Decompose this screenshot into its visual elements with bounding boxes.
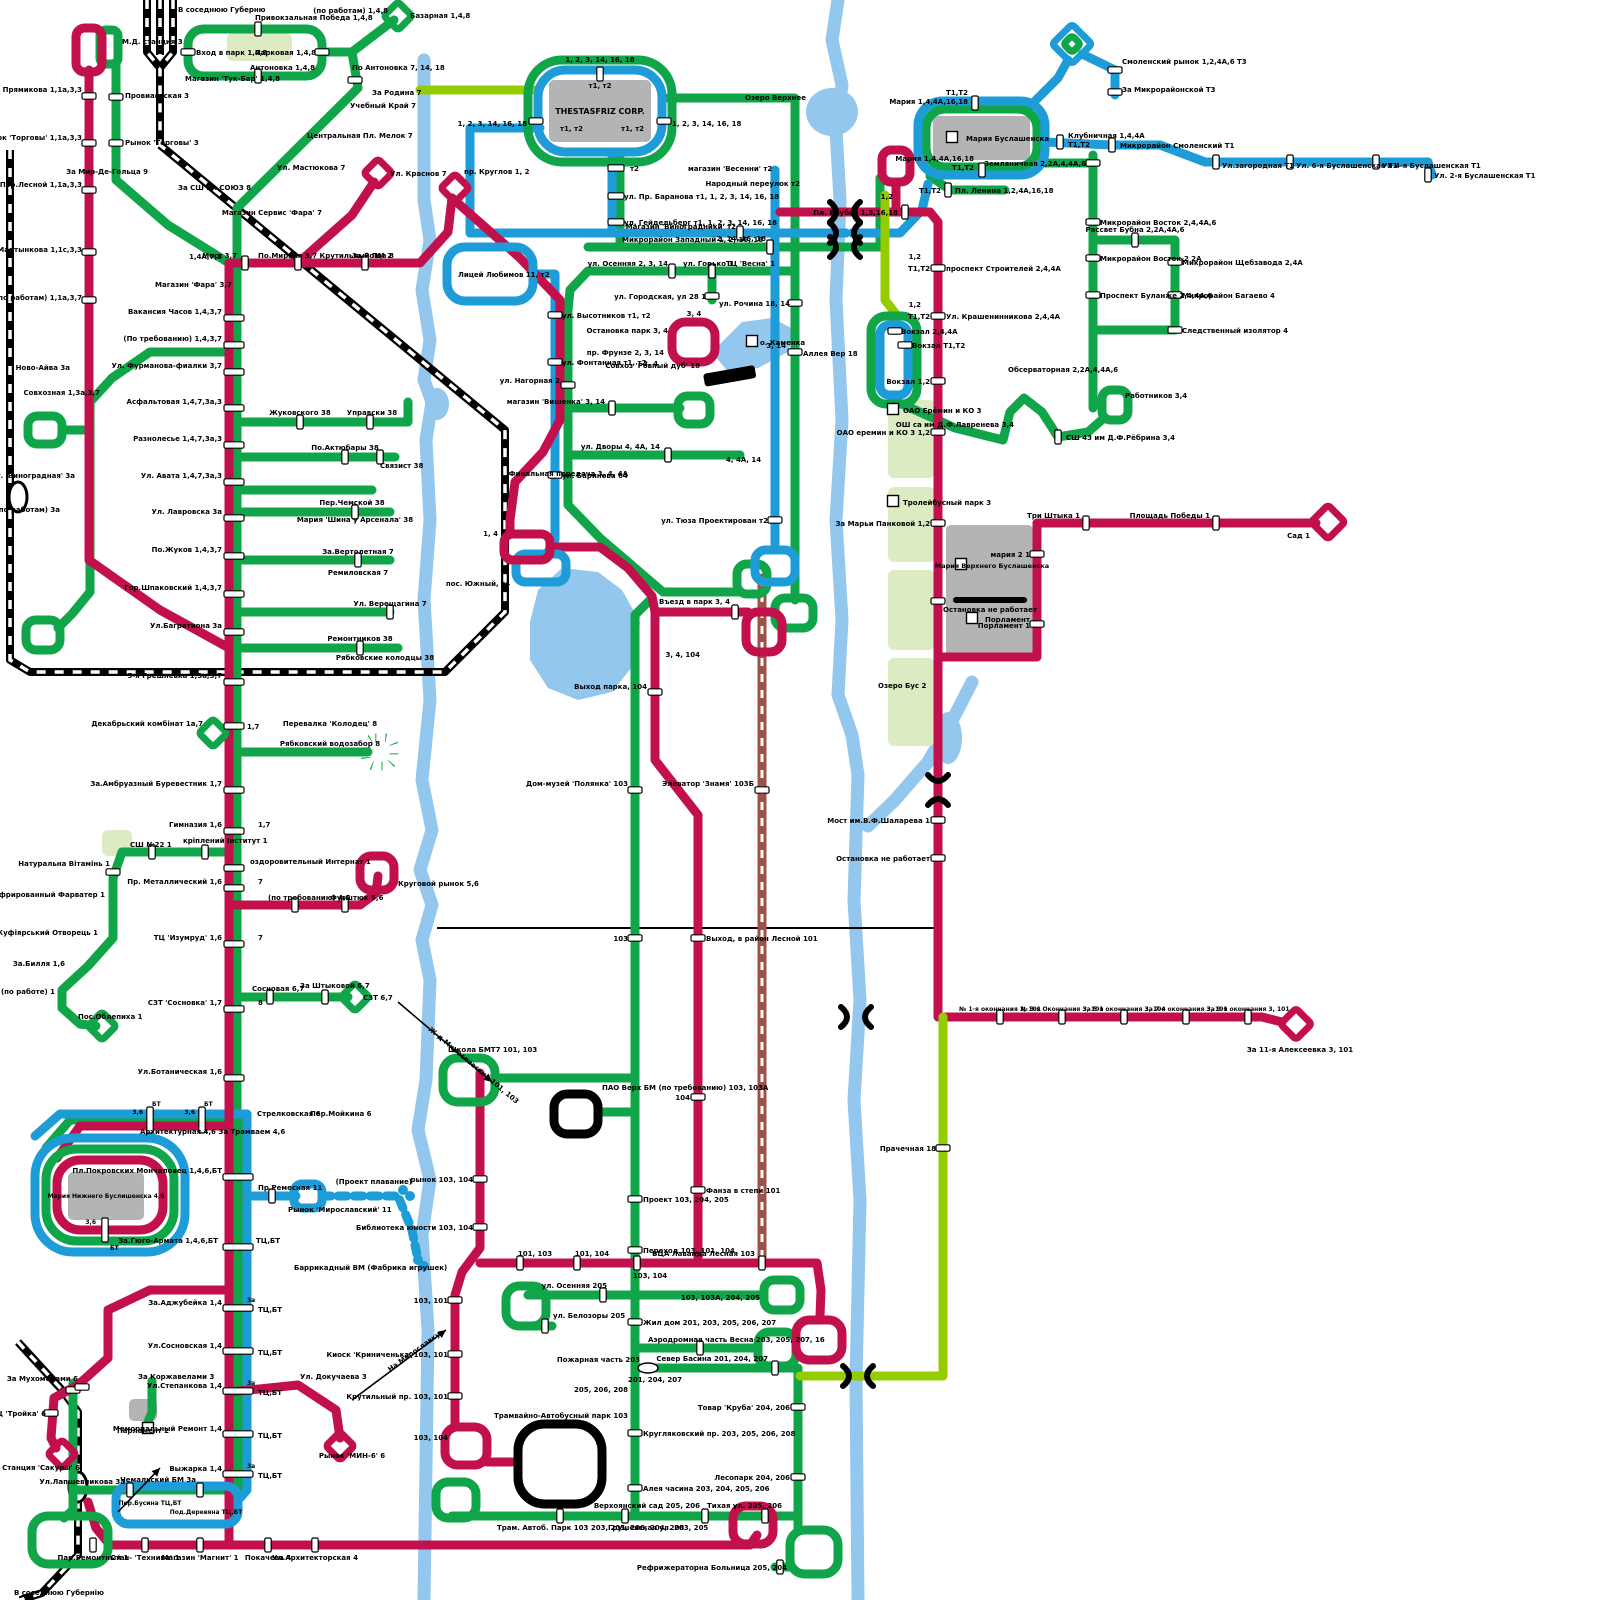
map-label: Земляничная 2,2А,4,4А,6 (984, 160, 1086, 168)
stop-marker (1168, 327, 1182, 333)
map-label: 103, 104 (414, 1434, 448, 1442)
map-label: 3, 14 (766, 342, 786, 350)
river (418, 60, 432, 1600)
map-label: 7 (258, 878, 263, 886)
map-label: Прямикова 1,1а,3,3 (3, 86, 82, 94)
map-label: 1,7 (258, 821, 271, 829)
map-label: Антоновка 1,4,8 (250, 64, 315, 72)
map-label: За Роща 8 (352, 252, 394, 260)
map-label: Магазин 'Магнит' 1 (161, 1554, 238, 1562)
terminal-loop (764, 1280, 800, 1310)
map-label: Ул.Ботаническая 1,6 (138, 1068, 222, 1076)
station-icon (947, 132, 958, 143)
map-label: Библиотека юности 103, 104 (356, 1224, 473, 1232)
stop-marker (1108, 89, 1122, 95)
map-label: магазин 'Вишенка' 3, 14 (507, 398, 605, 406)
map-label: Базарная 1,4,8 (410, 12, 470, 20)
stop-marker (223, 1348, 253, 1354)
map-label: ул. Городская, ул 28 1 (614, 293, 706, 301)
map-label: Магазин 'Виноградники' т2 (626, 223, 736, 231)
terminal-loop (76, 28, 102, 72)
bridge-mark (865, 1007, 871, 1027)
stop-marker (669, 264, 675, 278)
map-label: Тролейбусный парк 3 (903, 499, 991, 507)
map-label: 101, 103 (518, 1250, 552, 1258)
stop-marker (82, 140, 96, 146)
map-label: 1,7 (247, 723, 260, 731)
park-area (888, 570, 935, 650)
map-label: THESTASFRIZ CORP. (555, 107, 645, 116)
map-label: За Мухоморами 6 (7, 1375, 78, 1383)
map-label: Учебный Край 7 (350, 102, 416, 110)
stop-marker (224, 315, 244, 321)
map-label: Вакансия Часов 1,4,3,7 (128, 308, 222, 316)
map-label: Клубничная 1,4,4А (1068, 132, 1145, 140)
stop-marker (657, 118, 671, 124)
stop-marker (768, 517, 782, 523)
map-label: Элеватор 'Знамя' 103Б (662, 780, 754, 788)
map-label: Гор.Шпаковский 1,4,3,7 (124, 584, 222, 592)
stop-marker (931, 378, 945, 384)
map-label: Ул. Крашенинникова 2,4,4А (946, 313, 1061, 321)
map-label: Ул 4-я Буслашенская Т1 (1382, 162, 1481, 170)
stop-marker (142, 1538, 148, 1552)
stop-marker (1132, 233, 1138, 247)
map-label: ул. Тюза Проектирован т2 (661, 517, 768, 525)
map-label: Связист 38 (380, 462, 424, 470)
stop-marker (224, 1006, 244, 1012)
map-label: ТЦ,БТ (258, 1306, 282, 1314)
map-label: Натуральна Вітамінь 1 (18, 860, 110, 868)
map-label: 8 (258, 999, 263, 1007)
map-label: Рынок 'Мирославский' 11 (288, 1206, 392, 1214)
map-label: Верхоянский сад 205, 206 (594, 1502, 700, 1510)
map-label: Гофрированный Фарватер 1 (0, 891, 105, 899)
stop-marker (597, 67, 603, 81)
map-label: Гимназия 1,6 (169, 821, 222, 829)
terminal-diamond (1064, 36, 1081, 53)
map-label: ТЦ 'Изумруд' 1,6 (154, 934, 222, 942)
stop-marker (648, 689, 662, 695)
stop-marker (548, 359, 562, 365)
map-label: Архитектурная 4,6 За Трамваем 4,6 (140, 1128, 285, 1136)
map-label: БТ (110, 1245, 120, 1252)
route-line-r (298, 182, 374, 263)
stop-marker (628, 1196, 642, 1202)
map-label: Микрорайон Багаево 4 (1182, 292, 1275, 300)
map-label: Киоск 'Криниченька' 103, 101 (327, 1351, 449, 1359)
map-label: Тихая ул. 205, 206 (707, 1502, 782, 1510)
stop-marker (972, 96, 978, 110)
stop-marker (1086, 160, 1100, 166)
map-label: ул. Высотников т1, т2 (562, 312, 651, 320)
stop-marker (224, 787, 244, 793)
black-bar (953, 597, 1027, 603)
map-label: (Проект плавание) (336, 1178, 412, 1186)
map-label: ОАО Ерёмин и КО 3 (903, 407, 982, 415)
map-label: Фанза в степи 101 (706, 1187, 780, 1195)
stop-marker (312, 1538, 318, 1552)
map-label: пр. Фрунзе 2, 3, 14 (587, 349, 664, 357)
map-label: ОАО еремин и КО 3 1,2 (837, 429, 930, 437)
map-label: Вокзал 1,2 (886, 378, 930, 386)
stop-marker (931, 313, 945, 319)
map-label: магазин 'Весенни' т2 (688, 165, 772, 173)
stop-marker (561, 382, 575, 388)
stop-marker (224, 1075, 244, 1081)
stop-marker (791, 1404, 805, 1410)
stop-marker (1057, 135, 1063, 149)
stop-marker (223, 1471, 253, 1477)
route-line-r (455, 1073, 480, 1425)
station-icon (967, 613, 978, 624)
stop-marker (197, 1483, 203, 1497)
stop-marker (1086, 292, 1100, 298)
map-label: Ул. Лавровска 3а (152, 508, 223, 516)
map-label: Сосновая 6,7 (252, 985, 304, 993)
map-label: Товар 'Круба' 204, 206 (698, 1404, 790, 1412)
stop-marker (945, 183, 951, 197)
stop-marker (82, 93, 96, 99)
map-label: 103, 104 (633, 1272, 667, 1280)
stop-marker (315, 49, 329, 55)
map-label: 1, 4 (483, 530, 498, 538)
map-label: Выжарка 1,4 (169, 1465, 222, 1473)
stop-marker (772, 1361, 778, 1375)
map-label: За.Вертолетная 7 (322, 548, 394, 556)
stop-marker (1083, 516, 1089, 530)
map-label: Пр.Ремесная 11 (258, 1184, 322, 1192)
map-label: 103, 103А, 204, 205 (681, 1294, 760, 1302)
stop-marker (1108, 67, 1122, 73)
map-label: Ново-Айва 3а (16, 364, 71, 372)
stop-marker (788, 349, 802, 355)
stop-marker (702, 1509, 708, 1523)
map-label: Въезд в парк 3, 4 (659, 598, 730, 606)
map-label: Парламент 2 (117, 1427, 169, 1435)
terminal-loop (28, 416, 62, 444)
stop-marker (90, 1538, 96, 1552)
project-dot (405, 1191, 415, 1201)
map-label: Смоленский рынок 1,2,4А,6 Т3 (1122, 58, 1247, 66)
map-label: Пр. Металлический 1,6 (127, 878, 222, 886)
map-label: Мария Нижнего Буслишенска 4,6 (48, 1193, 165, 1200)
map-label: т1, т2 (560, 125, 583, 133)
map-label: оздоровительный Интернат 1 (250, 858, 371, 866)
stop-marker (109, 94, 123, 100)
map-label: Народный переулок т2 (705, 180, 800, 188)
map-label: 1,2 (909, 253, 922, 261)
map-label: 1,2 (881, 193, 894, 201)
stop-marker (517, 1256, 523, 1270)
stop-marker (931, 855, 945, 861)
stop-marker (1030, 621, 1044, 627)
map-label: Работников 3,4 (1125, 392, 1187, 400)
bridge-mark (841, 1007, 847, 1027)
stop-marker (1055, 430, 1061, 444)
map-label: Ул. Мастюкова 7 (277, 164, 345, 172)
stop-marker (357, 641, 363, 655)
map-label: 3, 4 (687, 310, 702, 318)
stop-marker (759, 1256, 765, 1270)
map-label: Алея часина 203, 204, 205, 206 (643, 1485, 770, 1493)
map-label: Ул.Степанкова 1,4 (147, 1382, 222, 1390)
map-label: Баррикадный ВМ (Фабрика игрушек) (294, 1264, 447, 1272)
terminal-loop (554, 1094, 598, 1134)
route-line-g (322, 20, 394, 52)
stop-marker (902, 205, 908, 219)
terminal-loop (26, 620, 60, 650)
stop-marker (888, 328, 902, 334)
map-label: ТЦ,БТ (258, 1472, 282, 1480)
map-label: Север Басина 201, 204, 207 (656, 1355, 768, 1363)
stop-marker (224, 369, 244, 375)
map-label: Разнолесье 1,4,7,3а,3 (133, 435, 222, 443)
map-label: 1,2 (909, 301, 922, 309)
map-label: За Родина 7 (372, 89, 422, 97)
map-label: Ремонтников 38 (327, 635, 392, 643)
map-label: Куфіярський Отворець 1 (0, 929, 98, 937)
map-label: Три Штыка 1 (1027, 512, 1080, 520)
map-label: Трамвайно-Автобусный парк 103 (494, 1412, 628, 1420)
map-label: За Мир-Де-Гольца 9 (66, 168, 148, 176)
map-label: Центральная Пл. Мелок 7 (307, 132, 413, 140)
map-label: Ул. Фурманова-фиалки 3,7 (112, 362, 223, 370)
transit-map-canvas: В соседнюю ГубернюПривокзальная Победа 1… (0, 0, 1600, 1600)
map-label: ОШ са им Д.Ф.Лавренева 3,4 (896, 421, 1014, 429)
terminal-diamond (199, 719, 227, 747)
stop-marker (367, 415, 373, 429)
stop-marker (202, 845, 208, 859)
transit-map-page: В соседнюю ГубернюПривокзальная Победа 1… (0, 0, 1600, 1600)
map-label: Рассвет Бубна 2,2А,4А,6 (1086, 226, 1185, 234)
map-label: Ул.Архитекторская 4 (272, 1554, 358, 1562)
map-label: Рынок 'Торговы' 3 (125, 139, 199, 147)
map-label: Остановка не работает (943, 606, 1038, 614)
stop-marker (109, 140, 123, 146)
map-label: Пл. Ленина 1,2,4А,16,18 (955, 187, 1054, 195)
stop-marker (788, 300, 802, 306)
map-label: рынок 103, 104 (411, 1176, 474, 1184)
station-icon (747, 336, 758, 347)
stop-marker (931, 520, 945, 526)
map-label: Т1,Т2 (908, 313, 930, 321)
map-label: Порламент 1 (978, 622, 1030, 630)
map-label: По.Жуков 1,4,3,7 (152, 546, 222, 554)
map-label: т1, т2 (621, 125, 644, 133)
terminal-loop (672, 322, 715, 362)
stop-marker (224, 405, 244, 411)
map-label: т1, т2 (589, 82, 612, 90)
stop-marker (82, 297, 96, 303)
map-label: Обсерваторная 2,2А,4,4А,6 (1008, 366, 1118, 374)
stop-marker (473, 1224, 487, 1230)
map-label: За Коржавелами 3 (138, 1373, 214, 1381)
map-label: 205, 206, 208 (574, 1386, 628, 1394)
map-label: СШ №22 1 (130, 841, 172, 849)
map-label: Проект 103, 204, 205 (643, 1196, 729, 1204)
stop-marker (732, 605, 738, 619)
map-label: Магазин 'Тук-Бар' 1,4,8 (185, 75, 280, 83)
stop-marker (628, 935, 642, 941)
map-label: Остановка парк 3, 4 (587, 327, 669, 335)
map-label: ул. Осенняя 205 (542, 1282, 607, 1290)
stop-marker (600, 1288, 606, 1302)
map-label: Сад 1 (1287, 532, 1310, 540)
map-label: 1, 2, 3, 14, 16, 18 (672, 120, 741, 128)
map-label: Аллея Вер 18 (803, 350, 858, 358)
map-label: СШ 43 им Д.Ф.Рёбрина 3,4 (1066, 434, 1175, 442)
stop-marker (705, 293, 719, 299)
stop-marker (181, 49, 195, 55)
map-label: 1,4А,7,8 (189, 253, 222, 261)
stop-marker (473, 1176, 487, 1182)
map-label: Ул.Сосновская 1,4 (148, 1342, 222, 1350)
map-label: ул. Рочина 18, 14 (719, 300, 790, 308)
stop-marker (448, 1351, 462, 1357)
map-label: Аэродромная часть Весна 203, 205, 207, 1… (648, 1336, 825, 1344)
map-label: 104 (675, 1094, 690, 1102)
map-label: Ул. Верещагина 7 (353, 600, 426, 608)
map-label: 3,6 (85, 1219, 96, 1226)
map-label: Прачечная 18 (880, 1145, 936, 1153)
map-label: ТЦ,БТ (258, 1432, 282, 1440)
map-label: ул. Баринова 64 (562, 472, 628, 480)
map-label: пр. Круглов 1, 2 (464, 168, 530, 176)
map-label: Ул. Докучаева 3 (300, 1373, 367, 1381)
stop-marker (691, 935, 705, 941)
terminal-diamond (1280, 1008, 1311, 1039)
stop-marker (224, 515, 244, 521)
stop-marker (628, 1485, 642, 1491)
map-label: Магазин Сервис 'Фара' 7 (222, 209, 322, 217)
terminal-loop (790, 1530, 838, 1574)
stop-marker (1109, 138, 1115, 152)
map-label: ул. Белозоры 205 (553, 1312, 625, 1320)
lake (530, 568, 640, 700)
map-label: Пожарная часть 203 (557, 1356, 640, 1364)
stop-marker (224, 828, 244, 834)
stop-marker (82, 249, 96, 255)
map-label: Лесопарк 204, 206 (714, 1474, 790, 1482)
terminal-loop (518, 1424, 602, 1504)
map-label: ул. Пр. Баранова т1, 1, 2, 3, 14, 16, 18 (624, 193, 779, 201)
station-icon (888, 404, 899, 415)
map-label: 5-я Грешневка 1,3а,3,7 (128, 672, 223, 680)
map-label: 1, 2, 3, 14, 16, 18 (565, 56, 634, 64)
map-label: Чемальский БМ 3а (120, 1476, 196, 1484)
map-label: 3,6 (184, 1109, 195, 1116)
map-label: 7 (258, 934, 263, 942)
stop-marker (224, 679, 244, 685)
map-label: проспект Строителей 2,4,4А (946, 265, 1062, 273)
map-label: (по работам) 1,4,8 (313, 7, 388, 15)
map-label: мария 2 1 (991, 551, 1031, 559)
map-label: Жуковского 38 (269, 409, 331, 417)
terminal-diamond (441, 174, 469, 202)
map-label: В соседнюю Губернію (14, 1589, 104, 1597)
stop-marker (1086, 255, 1100, 261)
stop-marker (691, 1094, 705, 1100)
stop-marker (931, 817, 945, 823)
map-label: Следственный изолятор 4 (1182, 327, 1288, 335)
map-label: ТЦ,БТ (258, 1349, 282, 1357)
map-label: Футштюк 5,6 (330, 894, 384, 902)
map-label: Пл. Врубая 1,3,16,18 (813, 209, 898, 217)
map-label: 3а (247, 1463, 255, 1470)
route-line-g (635, 1368, 798, 1516)
map-label: Рынок 'МИН-6' 6 (319, 1452, 385, 1460)
stop-marker (628, 1430, 642, 1436)
stop-marker (224, 723, 244, 729)
map-label: Озеро Бус 2 (878, 682, 927, 690)
map-label: Мария 1,4,4А,16,18 (889, 98, 968, 106)
map-label: Магазин 'Фара' 3,7 (155, 281, 232, 289)
map-label: Дом-музей 'Полянка' 103 (526, 780, 628, 788)
map-label: В соседнюю Губерню (178, 6, 266, 14)
stop-marker (634, 1256, 640, 1270)
map-label: 3а (247, 1297, 255, 1304)
stop-marker (342, 450, 348, 464)
map-label: Станция 'Сакуры' 6 (2, 1464, 80, 1472)
map-label: (по работам) 1,1а,3,7 (0, 294, 82, 302)
stop-marker (898, 342, 912, 348)
stop-marker (223, 1431, 253, 1437)
map-label: Рябковский водозабор 8 (280, 740, 380, 748)
map-label: Мост им.В.Ф.Шаларева 1 (827, 817, 930, 825)
stop-marker (557, 1509, 563, 1523)
stop-marker (931, 265, 945, 271)
map-label: Пер.Мойкина 6 (310, 1110, 372, 1118)
stop-marker (762, 1509, 768, 1523)
map-label: кріплений Інститут 1 (183, 837, 268, 845)
building-block (946, 525, 1033, 657)
map-label: Выход, в район Лесной 101 (706, 935, 818, 943)
stop-marker (242, 256, 248, 270)
map-label: Ул. 2-я Буслашенская Т1 (1434, 172, 1536, 180)
stop-marker (608, 193, 624, 199)
map-label: ТЦ,БТ (256, 1237, 280, 1245)
map-label: Крутильный пр. 103, 101 (346, 1393, 448, 1401)
pond (806, 88, 858, 136)
map-label: Вокзал 2,4,4А (901, 328, 958, 336)
map-label: Ул. Авата 1,4,7,3а,3 (141, 472, 222, 480)
map-label: Пер.Чемской 38 (319, 499, 384, 507)
stop-marker (529, 118, 543, 124)
map-label: Мария 'Шина у Арсенала' 38 (297, 516, 413, 524)
map-label: Кругляковский пр. 203, 205, 206, 208 (643, 1430, 796, 1438)
map-label: Лицей Любимов 11, т2 (458, 271, 550, 279)
stop-marker (224, 591, 244, 597)
stop-marker (609, 401, 615, 415)
map-label: За Марьи Панковой 1,2 (835, 520, 930, 528)
map-label: Провиантская 3 (125, 92, 189, 100)
stop-marker (322, 990, 328, 1004)
stop-marker (255, 22, 261, 36)
stop-marker (628, 787, 642, 793)
stop-marker (223, 1174, 253, 1180)
map-label: Пос.Облепиха 1 (78, 1013, 143, 1021)
map-label: Управски 38 (347, 409, 398, 417)
stop-marker (608, 165, 624, 171)
map-label: Вокзал Т1,Т2 (912, 342, 965, 350)
map-label: 101, 104 (575, 1250, 609, 1258)
terminal-loop (445, 1427, 487, 1465)
stop-marker (1030, 551, 1044, 557)
stop-marker (936, 1145, 950, 1151)
map-label: ул. Фонтанная т1, т2 (562, 359, 647, 367)
map-label: За Штыковой 6,7 (300, 982, 370, 990)
